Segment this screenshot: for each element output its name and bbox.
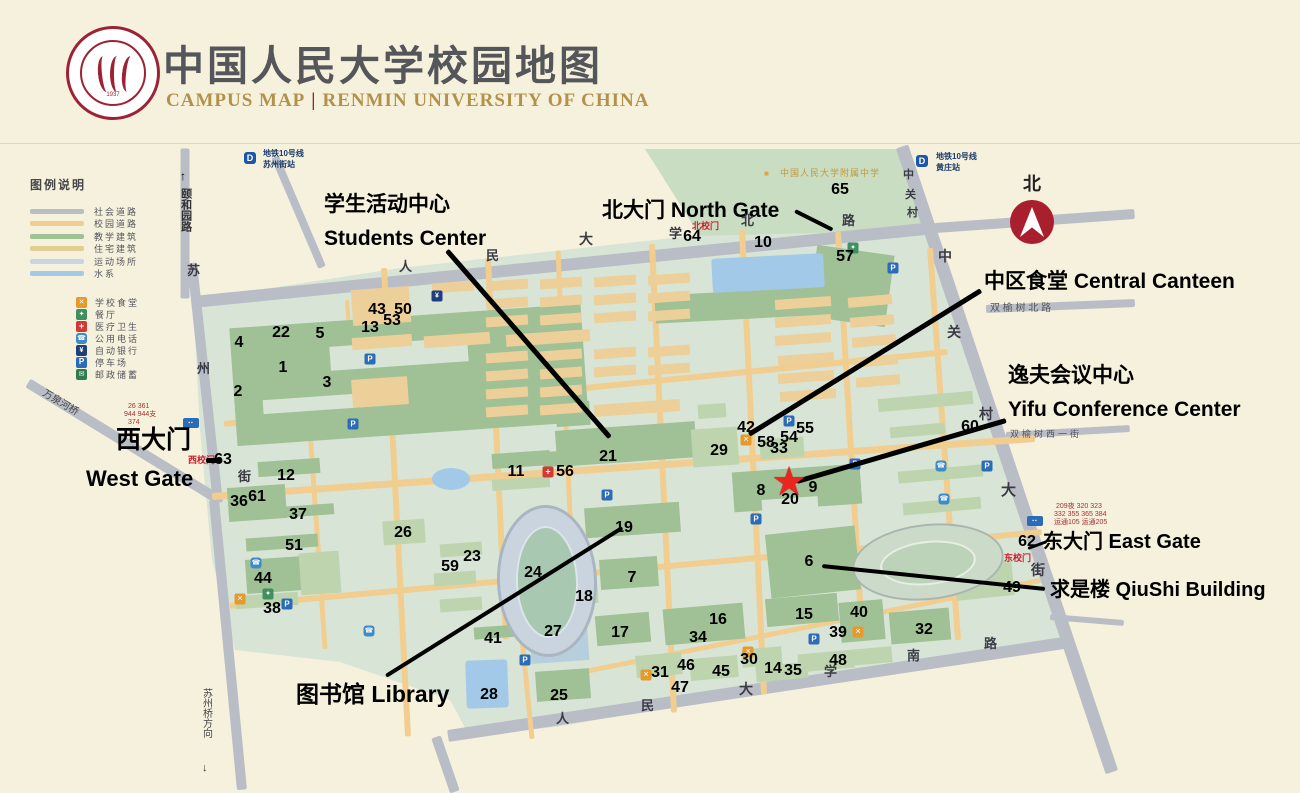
legend-road-item: 水系 <box>30 268 215 281</box>
legend-label: 水系 <box>94 267 116 280</box>
map-text: 东大门 East Gate <box>1043 531 1201 554</box>
building-number: 27 <box>544 623 562 641</box>
legend-color-swatch <box>30 221 84 226</box>
building-number: 51 <box>285 537 303 555</box>
building-number: 55 <box>796 420 814 438</box>
parking-icon: P <box>520 655 531 666</box>
map-text: 运通105 运通205 <box>1054 519 1107 527</box>
map-text: Yifu Conference Center <box>1008 398 1241 422</box>
building-number: 15 <box>795 606 813 624</box>
map-text: 苏州街站 <box>263 160 295 169</box>
building-number: 18 <box>575 588 593 606</box>
building-number: 41 <box>484 630 502 648</box>
map-text: 双 榆 树 北 路 <box>990 303 1051 315</box>
phone-icon: ☎ <box>364 626 375 637</box>
parking-icon: P <box>888 263 899 274</box>
parking-icon: P <box>982 461 993 472</box>
building-number: 4 <box>235 334 244 352</box>
legend-title: 图例说明 <box>30 176 215 193</box>
legend-icon-item: ☎公用电话 <box>76 332 215 344</box>
map-text: 大 <box>579 231 593 247</box>
building-number: 5 <box>316 325 325 343</box>
legend-label: 社会道路 <box>94 205 138 218</box>
north-label: 北 <box>1006 170 1058 196</box>
parking-icon: P <box>602 490 613 501</box>
map-text: 中区食堂 Central Canteen <box>984 270 1235 294</box>
map-text: 民 <box>641 699 654 714</box>
map-text: 26 361 <box>128 403 149 411</box>
pond <box>432 468 470 490</box>
postal-icon: ✉ <box>76 369 87 380</box>
map-text: 209夜 320 323 <box>1056 503 1102 511</box>
map-text: 中 <box>938 248 952 264</box>
building-number: 39 <box>829 624 847 642</box>
building-number: 62 <box>1018 533 1036 551</box>
map-text: 学 <box>669 227 682 242</box>
building <box>299 551 342 596</box>
legend-color-swatch <box>30 234 84 239</box>
map-text: 民 <box>486 249 499 264</box>
legend-label: 校园道路 <box>94 217 138 230</box>
map-text: 北校门 <box>692 221 719 231</box>
building-number: 34 <box>689 629 707 647</box>
map-text: 东校门 <box>1004 553 1031 563</box>
building-number: 38 <box>263 600 281 618</box>
building-number: 26 <box>394 524 412 542</box>
legend-icon-list: ✕学校食堂✦餐厅+医疗卫生☎公用电话¥自动银行P停车场✉邮政储蓄 <box>76 296 215 380</box>
building-number: 25 <box>550 687 568 705</box>
map-text: 地铁10号线 <box>936 152 977 161</box>
building-number: 59 <box>441 558 459 576</box>
map-text: 北 <box>741 214 754 229</box>
building-number: 57 <box>836 248 854 266</box>
building-number: 16 <box>709 611 727 629</box>
metro-icon: D <box>916 155 928 167</box>
map-text: 街 <box>238 470 251 485</box>
map-text: 中国人民大学附属中学 <box>780 168 880 178</box>
building-number: 2 <box>234 383 243 401</box>
map-text: 村 <box>907 207 918 220</box>
map-text: 学 <box>824 665 837 680</box>
building-number: 23 <box>463 548 481 566</box>
map-text: 万泉河桥 <box>40 388 80 418</box>
phone-icon: ☎ <box>76 333 87 344</box>
medical-icon: + <box>543 467 554 478</box>
legend-color-swatch <box>30 259 84 264</box>
parking-icon: P <box>282 599 293 610</box>
parking-icon: P <box>348 419 359 430</box>
parking-icon: P <box>365 354 376 365</box>
map-text: 黄庄站 <box>936 163 960 172</box>
legend-road-item: 教学建筑 <box>30 230 215 243</box>
legend-color-swatch <box>30 271 84 276</box>
legend-label: 住宅建筑 <box>94 242 138 255</box>
legend: 图例说明 社会道路校园道路教学建筑住宅建筑运动场所水系 ✕学校食堂✦餐厅+医疗卫… <box>30 176 215 380</box>
restaurant-icon: ✦ <box>76 309 87 320</box>
legend-road-item: 运动场所 <box>30 255 215 268</box>
building-number: 46 <box>677 657 695 675</box>
map-text: 人 <box>399 260 412 275</box>
phone-icon: ☎ <box>251 558 262 569</box>
legend-label: 运动场所 <box>94 255 138 268</box>
legend-label: 教学建筑 <box>94 230 138 243</box>
building-number: 3 <box>323 374 332 392</box>
building-number: 45 <box>712 663 730 681</box>
map-text: ↓ <box>202 762 208 775</box>
map-text: 街 <box>1031 562 1045 578</box>
building-number: 10 <box>754 234 772 252</box>
building-number: 61 <box>248 488 266 506</box>
legend-road-item: 社会道路 <box>30 205 215 218</box>
canteen-icon: ✕ <box>641 670 652 681</box>
phone-icon: ☎ <box>939 494 950 505</box>
building-number: 21 <box>599 448 617 466</box>
road-segment <box>271 155 325 268</box>
map-text: 求是楼 QiuShi Building <box>1050 579 1266 602</box>
legend-icon-item: ✉邮政储蓄 <box>76 368 215 380</box>
map-text: 图书馆 Library <box>296 681 449 707</box>
building-number: 47 <box>671 679 689 697</box>
map-text: 大 <box>1001 482 1016 499</box>
map-text: 332 355 365 384 <box>1054 511 1107 519</box>
legend-icon-item: P停车场 <box>76 356 215 368</box>
annotation-arrow <box>206 458 221 463</box>
building-number: 9 <box>809 479 818 497</box>
building-number: 56 <box>556 463 574 481</box>
canteen-icon: ✕ <box>235 594 246 605</box>
map-text: 关 <box>947 324 961 340</box>
map-text: 944 944支 <box>124 411 156 419</box>
map-text: 路 <box>984 637 997 652</box>
north-indicator: 北 <box>1006 170 1058 244</box>
map-text: 大 <box>739 681 753 697</box>
building-number: 14 <box>764 660 782 678</box>
star-marker: ★ <box>771 459 807 505</box>
legend-icon-item: +医疗卫生 <box>76 320 215 332</box>
canteen-icon: ✕ <box>853 627 864 638</box>
map-text: 村 <box>979 406 993 422</box>
atm-icon: ¥ <box>76 345 87 356</box>
map-text: 学生活动中心 <box>324 193 450 217</box>
legend-icon-item: ✕学校食堂 <box>76 296 215 308</box>
building-number: 58 <box>757 434 775 452</box>
map-text: 路 <box>842 214 855 229</box>
legend-icon-item: ¥自动银行 <box>76 344 215 356</box>
map-text: 苏州桥方向 <box>200 688 212 738</box>
building-number: 1 <box>279 359 288 377</box>
compass-icon <box>1010 200 1054 244</box>
map-text: 双榆树西一街 <box>1010 429 1082 439</box>
map-text: 374 <box>128 419 140 427</box>
building-number: 32 <box>915 621 933 639</box>
residential-building <box>351 376 409 408</box>
map-text: 地铁10号线 <box>263 149 304 158</box>
legend-color-swatch <box>30 209 84 214</box>
building-number: 13 <box>361 319 379 337</box>
medical-icon: + <box>76 321 87 332</box>
legend-road-item: 校园道路 <box>30 218 215 231</box>
building-number: 12 <box>277 467 295 485</box>
map-text: 人 <box>556 712 569 727</box>
building-number: 40 <box>850 604 868 622</box>
building-number: 37 <box>289 506 307 524</box>
canteen-icon: ✕ <box>76 297 87 308</box>
legend-road-list: 社会道路校园道路教学建筑住宅建筑运动场所水系 <box>30 205 215 280</box>
compass-arrow-icon <box>1020 207 1044 237</box>
building-number: 29 <box>710 442 728 460</box>
map-text: 西大门 <box>116 426 191 455</box>
map-text: West Gate <box>86 466 193 491</box>
metro-icon: D <box>244 152 256 164</box>
map-text: 中 <box>903 169 914 182</box>
building-number: 8 <box>757 482 766 500</box>
building-number: 36 <box>230 493 248 511</box>
building-number: 17 <box>611 624 629 642</box>
parking-icon: P <box>76 357 87 368</box>
map-text: 关 <box>905 189 916 202</box>
water-pool <box>711 253 825 293</box>
building <box>698 403 727 419</box>
restaurant-icon: ✦ <box>263 589 274 600</box>
legend-icon-item: ✦餐厅 <box>76 308 215 320</box>
building-number: 28 <box>480 686 498 704</box>
building-number: 7 <box>628 569 637 587</box>
legend-label: 邮政储蓄 <box>95 368 139 381</box>
bus-icon: ▪▪ <box>1027 516 1043 526</box>
road-segment <box>431 735 459 793</box>
map-text: Students Center <box>324 227 486 251</box>
building-number: 65 <box>831 181 849 199</box>
building-number: 44 <box>254 570 272 588</box>
building-number: 53 <box>383 312 401 330</box>
building-number: 30 <box>740 651 758 669</box>
building-number: 35 <box>784 662 802 680</box>
legend-color-swatch <box>30 246 84 251</box>
campus-map: DDPPPPPPPPPPP☎☎☎☎✕✕✕✕✕+✦✦¥▪▪▪▪1234567891… <box>0 0 1300 793</box>
building-number: 11 <box>508 463 525 481</box>
parking-icon: P <box>809 634 820 645</box>
building-number: 31 <box>651 664 669 682</box>
phone-icon: ☎ <box>936 461 947 472</box>
legend-road-item: 住宅建筑 <box>30 243 215 256</box>
parking-icon: P <box>784 416 795 427</box>
atm-icon: ¥ <box>432 291 443 302</box>
map-text: 逸夫会议中心 <box>1008 364 1134 388</box>
parking-icon: P <box>751 514 762 525</box>
map-text: ■ <box>764 169 769 178</box>
building-number: 22 <box>272 324 290 342</box>
building-number: 6 <box>805 553 814 571</box>
map-text: 南 <box>907 649 920 664</box>
campus-map-page: { "header": { "title": "中国人民大学校园地图", "su… <box>0 0 1300 793</box>
